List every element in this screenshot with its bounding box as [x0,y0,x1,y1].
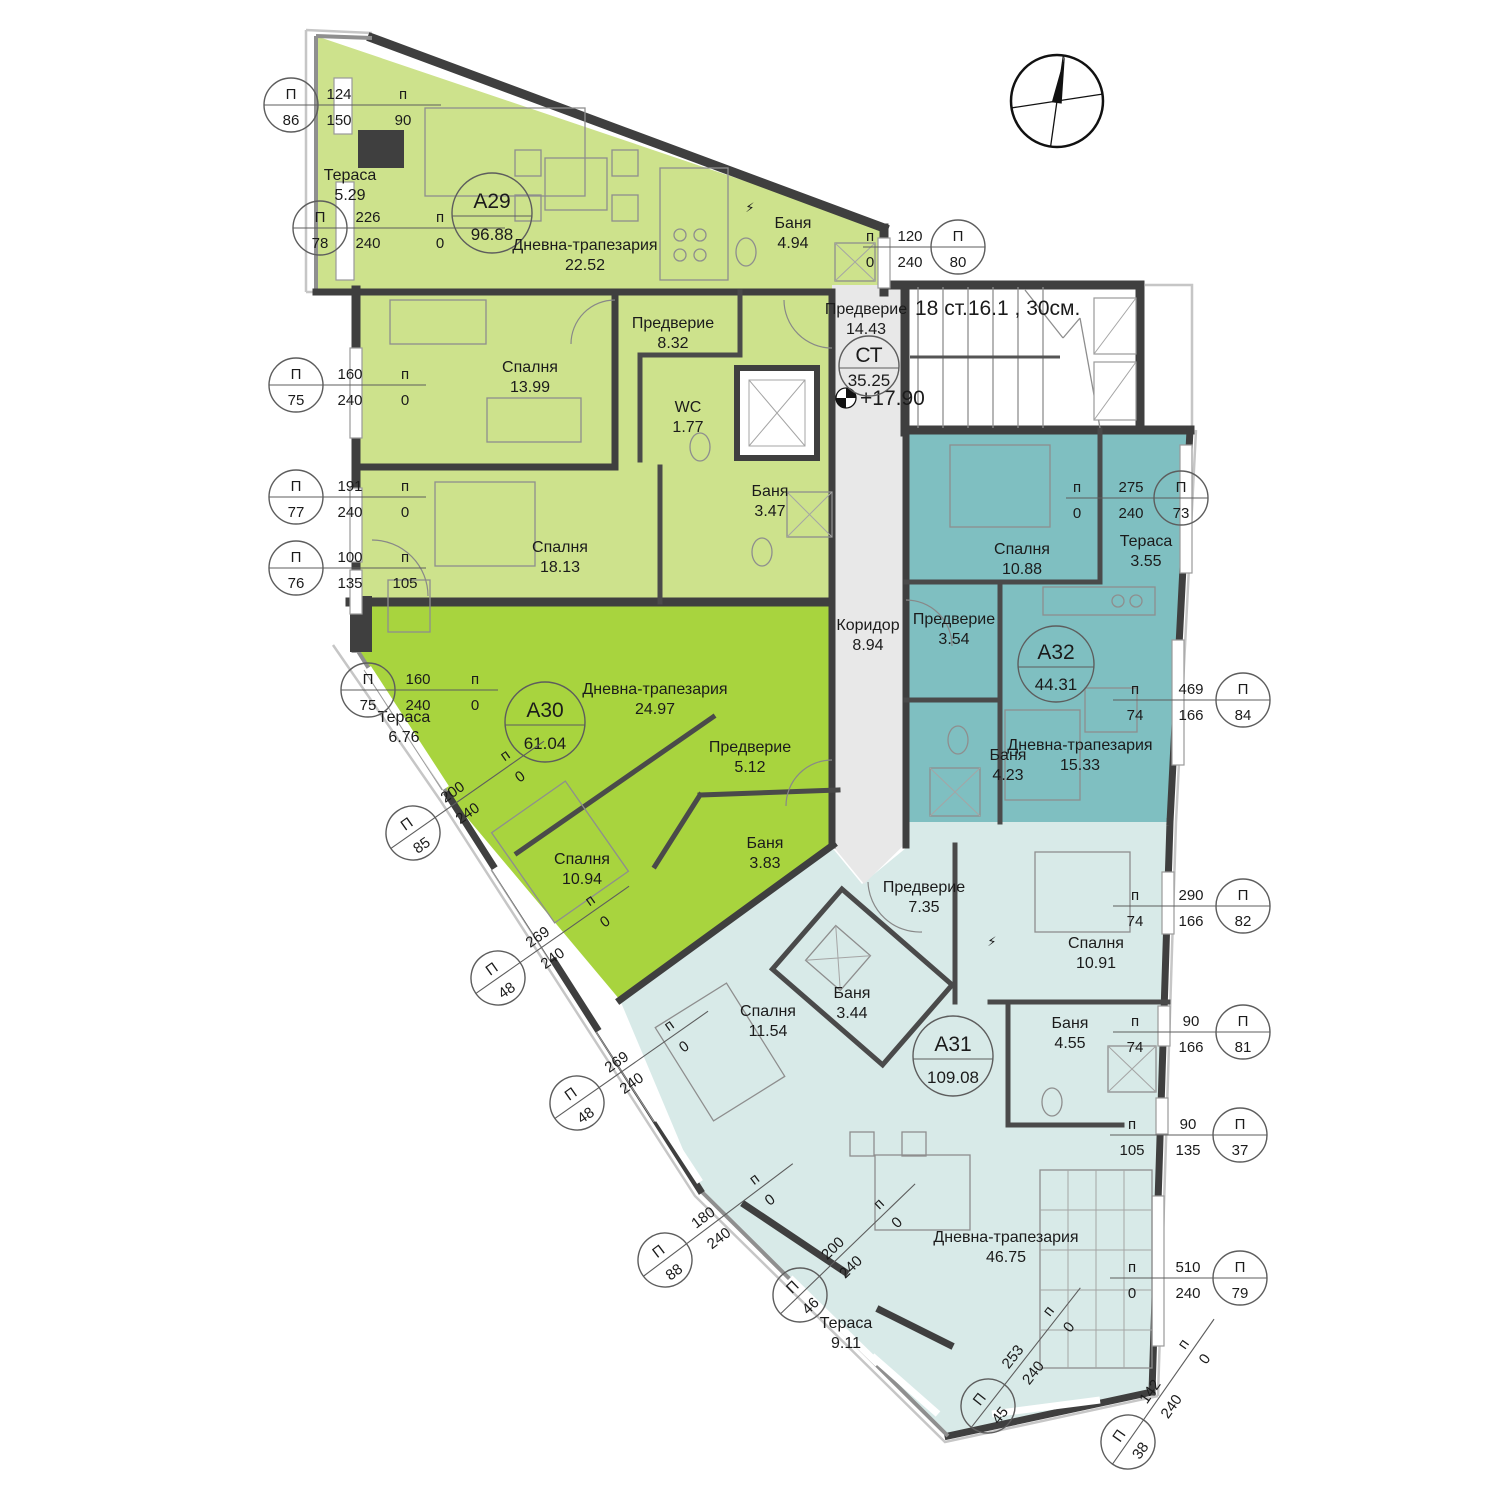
callout-width: 160 [405,671,430,688]
callout-width: 90 [1180,1116,1197,1133]
callout-height: 135 [1175,1142,1200,1159]
room-area: 3.55 [1130,553,1161,570]
room-name: Спалня [740,1003,796,1020]
apartment-area: 109.08 [927,1068,979,1087]
sill-prefix: п [1131,887,1139,904]
callout-prefix: П [291,549,302,566]
sill-value: 0 [436,235,444,252]
callout-height: 150 [326,112,351,129]
sill-value: 0 [401,392,409,409]
sill-prefix: п [401,478,409,495]
stair-id: СТ [855,344,882,367]
callout-prefix: П [1235,1116,1246,1133]
window-glyph [878,238,890,288]
room-name: Дневна-трапезария [582,681,727,698]
callout-width: 180 [688,1204,718,1233]
sill-prefix: п [401,549,409,566]
callout-prefix: П [398,814,417,834]
room-area: 6.76 [388,729,419,746]
sill-value: 0 [1073,505,1081,522]
room-name: Спалня [994,541,1050,558]
callout-num: 37 [1232,1142,1249,1159]
apartment-id: А31 [934,1033,971,1056]
room-area: 10.94 [562,871,602,888]
lobby-name: Предверие [825,301,907,318]
callout-height: 240 [1118,505,1143,522]
room-name: Тераса [324,167,377,184]
window-glyph [1152,1196,1164,1346]
room-name: Спалня [502,359,558,376]
window-glyph [1172,640,1184,765]
room-area: 5.29 [334,187,365,204]
sill-value: 105 [392,575,417,592]
room-name: Баня [775,215,812,232]
room-area: 22.52 [565,257,605,274]
room-name: Баня [747,835,784,852]
room-area: 4.23 [992,767,1023,784]
callout-height: 240 [355,235,380,252]
sill-prefix: п [1131,1013,1139,1030]
callout-prefix: П [483,959,502,979]
callout-width: 124 [326,86,351,103]
room-area: 7.35 [908,899,939,916]
sill-value: 0 [1196,1351,1215,1368]
level-marker: +17.90 [836,387,925,410]
floor-plan-page: ⚡ ⚡ +17.90 Предверие 14.43 СТ 35.25 18 с [0,0,1500,1500]
callout-height: 240 [1158,1392,1186,1422]
callout-num: 84 [1235,707,1252,724]
floor-plan-drawing: ⚡ ⚡ +17.90 Предверие 14.43 СТ 35.25 18 с [0,0,1500,1500]
window-callout-76: П 76 100 135 п 105 [269,541,426,595]
room-name: Дневна-трапезария [512,237,657,254]
room-name: Предверие [913,611,995,628]
apartment-area: 61.04 [524,734,567,753]
callout-num: 80 [950,254,967,271]
callout-width: 226 [355,209,380,226]
callout-width: 510 [1175,1259,1200,1276]
callout-prefix: П [286,86,297,103]
window-callout-81: П 81 90 166 п 74 [1113,1005,1270,1059]
room-area: 8.32 [657,335,688,352]
room-name: Предверие [632,315,714,332]
room-name: Тераса [820,1315,873,1332]
room-name: Предверие [709,739,791,756]
window-callout-79: П 79 510 240 п 0 [1110,1251,1267,1305]
sill-prefix: п [1131,681,1139,698]
callout-width: 160 [337,366,362,383]
apartment-area: 44.31 [1035,675,1078,694]
callout-num: 76 [288,575,305,592]
room-area: 3.83 [749,855,780,872]
sill-prefix: п [401,366,409,383]
callout-width: 469 [1178,681,1203,698]
apartment-id: А30 [526,699,563,722]
sill-value: 74 [1127,707,1144,724]
electric-icon: ⚡ [987,934,996,949]
callout-prefix: П [1238,1013,1249,1030]
callout-num: 86 [283,112,300,129]
callout-width: 191 [337,478,362,495]
corridor-name: Коридор [836,617,899,634]
room-area: 10.88 [1002,561,1042,578]
sill-value: 105 [1119,1142,1144,1159]
window-callout-82: П 82 290 166 п 74 [1113,879,1270,933]
room-area: 15.33 [1060,757,1100,774]
stair-area: 35.25 [848,371,891,390]
room-name: Тераса [1120,533,1173,550]
room-area: 11.54 [749,1023,788,1040]
room-name: Предверие [883,879,965,896]
callout-num: 75 [288,392,305,409]
apartment-regions [316,36,1190,1436]
callout-height: 166 [1178,1039,1203,1056]
room-name: WC [675,399,702,416]
callout-num: 82 [1235,913,1252,930]
sill-value: 0 [471,697,479,714]
callout-height: 135 [337,575,362,592]
callout-height: 240 [897,254,922,271]
window-callout-37: П 37 90 135 п 105 [1110,1108,1267,1162]
callout-prefix: П [953,228,964,245]
callout-num: 78 [312,235,329,252]
callout-width: 120 [897,228,922,245]
callout-height: 166 [1178,707,1203,724]
elevator [737,368,817,458]
sill-prefix: п [1073,479,1081,496]
callout-width: 90 [1183,1013,1200,1030]
sill-prefix: п [1128,1116,1136,1133]
apartment-id: А32 [1037,641,1074,664]
callout-prefix: П [363,671,374,688]
window-glyph [1158,1006,1170,1046]
room-area: 3.44 [836,1005,867,1022]
callout-width: 290 [1178,887,1203,904]
sill-value: 74 [1127,913,1144,930]
callout-width: 100 [337,549,362,566]
callout-num: 81 [1235,1039,1252,1056]
callout-prefix: П [291,366,302,383]
room-area: 24.97 [635,701,675,718]
room-area: 46.75 [986,1249,1026,1266]
callout-height: 240 [405,697,430,714]
window-callout-77: П 77 191 240 п 0 [269,470,426,524]
room-area: 1.77 [672,419,703,436]
sill-prefix: п [436,209,444,226]
sill-value: 0 [1128,1285,1136,1302]
callout-prefix: П [1238,887,1249,904]
sill-prefix: п [866,228,874,245]
room-name: Дневна-трапезария [933,1229,1078,1246]
sill-value: 90 [395,112,412,129]
electric-icon: ⚡ [745,200,754,215]
stair-note: 18 ст.16.1 , 30см. [915,297,1080,320]
level-value: +17.90 [860,387,925,410]
callout-height: 240 [337,392,362,409]
sill-value: 0 [866,254,874,271]
room-name: Баня [752,483,789,500]
callout-prefix: П [649,1242,668,1262]
window-callout-75: П 75 160 240 п 0 [269,358,426,412]
callout-prefix: П [1235,1259,1246,1276]
room-area: 3.47 [754,503,785,520]
window-callout-84: П 84 469 166 п 74 [1113,673,1270,727]
callout-num: 79 [1232,1285,1249,1302]
room-area: 5.12 [734,759,765,776]
room-area: 10.91 [1076,955,1116,972]
callout-height: 166 [1178,913,1203,930]
room-area: 9.11 [831,1335,861,1352]
window-glyph [1156,1098,1168,1134]
room-name: Баня [834,985,871,1002]
corridor-area: 8.94 [852,637,883,654]
callout-prefix: П [315,209,326,226]
callout-prefix: П [562,1084,581,1104]
callout-prefix: П [291,478,302,495]
callout-prefix: П [1238,681,1249,698]
window-glyph [1162,872,1174,934]
room-area: 4.55 [1054,1035,1085,1052]
callout-num: 75 [360,697,377,714]
room-name: Спалня [1068,935,1124,952]
window-callout-75b: П 75 160 240 п 0 [341,663,498,717]
sill-prefix: п [399,86,407,103]
sill-value: 0 [401,504,409,521]
callout-num: 77 [288,504,305,521]
sill-prefix: п [1128,1259,1136,1276]
callout-height: 240 [1175,1285,1200,1302]
room-area: 13.99 [510,379,550,396]
room-name: Дневна-трапезария [1007,737,1152,754]
sill-value: 74 [1127,1039,1144,1056]
room-name: Спалня [532,539,588,556]
room-area: 3.54 [938,631,969,648]
apartment-id: А29 [473,190,510,213]
callout-prefix: П [1109,1427,1129,1446]
callout-num: 73 [1173,505,1190,522]
callout-height: 240 [337,504,362,521]
north-arrow-icon [1011,55,1103,147]
callout-width: 275 [1118,479,1143,496]
room-name: Баня [1052,1015,1089,1032]
callout-prefix: П [1176,479,1187,496]
sill-prefix: п [471,671,479,688]
room-name: Спалня [554,851,610,868]
room-area: 18.13 [540,559,580,576]
room-area: 4.94 [777,235,808,252]
sill-prefix: п [1174,1336,1193,1352]
